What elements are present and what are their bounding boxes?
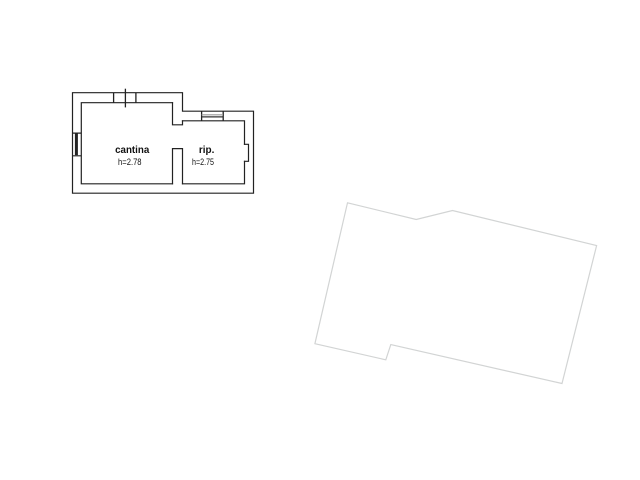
svg-text:h=2.75: h=2.75 — [192, 157, 214, 167]
svg-text:h=2.78: h=2.78 — [118, 157, 142, 167]
svg-text:cantina: cantina — [115, 145, 150, 156]
svg-text:rip.: rip. — [199, 145, 215, 156]
